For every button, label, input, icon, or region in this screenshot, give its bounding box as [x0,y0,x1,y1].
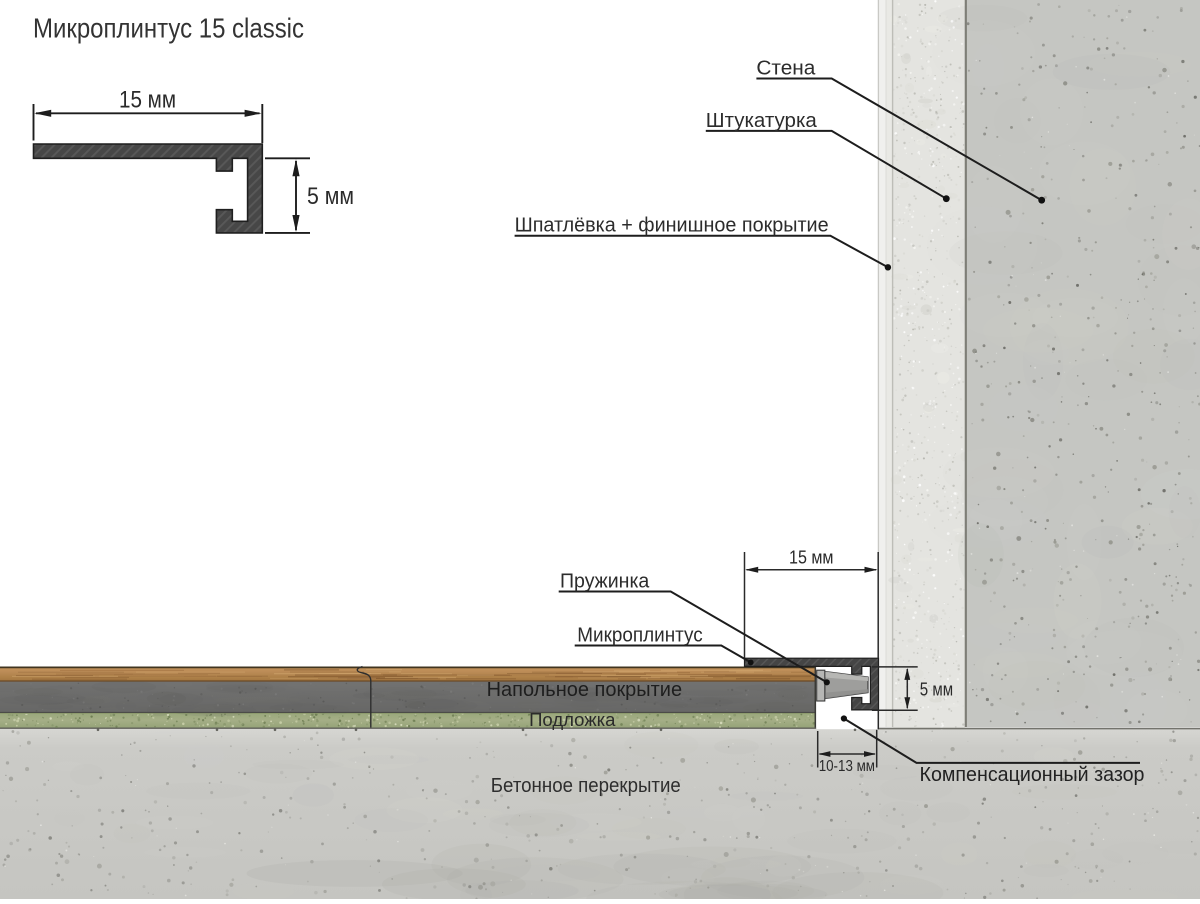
svg-text:Бетонное перекрытие: Бетонное перекрытие [491,775,681,797]
svg-text:5 мм: 5 мм [307,183,354,210]
svg-text:5 мм: 5 мм [920,679,953,699]
svg-text:Шпатлёвка + финишное покрытие: Шпатлёвка + финишное покрытие [515,214,829,236]
svg-text:Напольное покрытие: Напольное покрытие [487,679,682,701]
svg-text:Стена: Стена [756,57,816,79]
svg-text:15 мм: 15 мм [119,87,176,114]
svg-text:Пружинка: Пружинка [560,570,650,592]
svg-text:Подложка: Подложка [529,710,616,730]
svg-text:Компенсационный зазор: Компенсационный зазор [920,764,1145,786]
svg-text:Микроплинтус 15 classic: Микроплинтус 15 classic [33,13,304,44]
svg-text:15 мм: 15 мм [789,548,834,568]
svg-text:Штукатурка: Штукатурка [706,110,818,132]
svg-text:Микроплинтус: Микроплинтус [577,625,702,647]
svg-text:10-13 мм: 10-13 мм [819,758,875,775]
